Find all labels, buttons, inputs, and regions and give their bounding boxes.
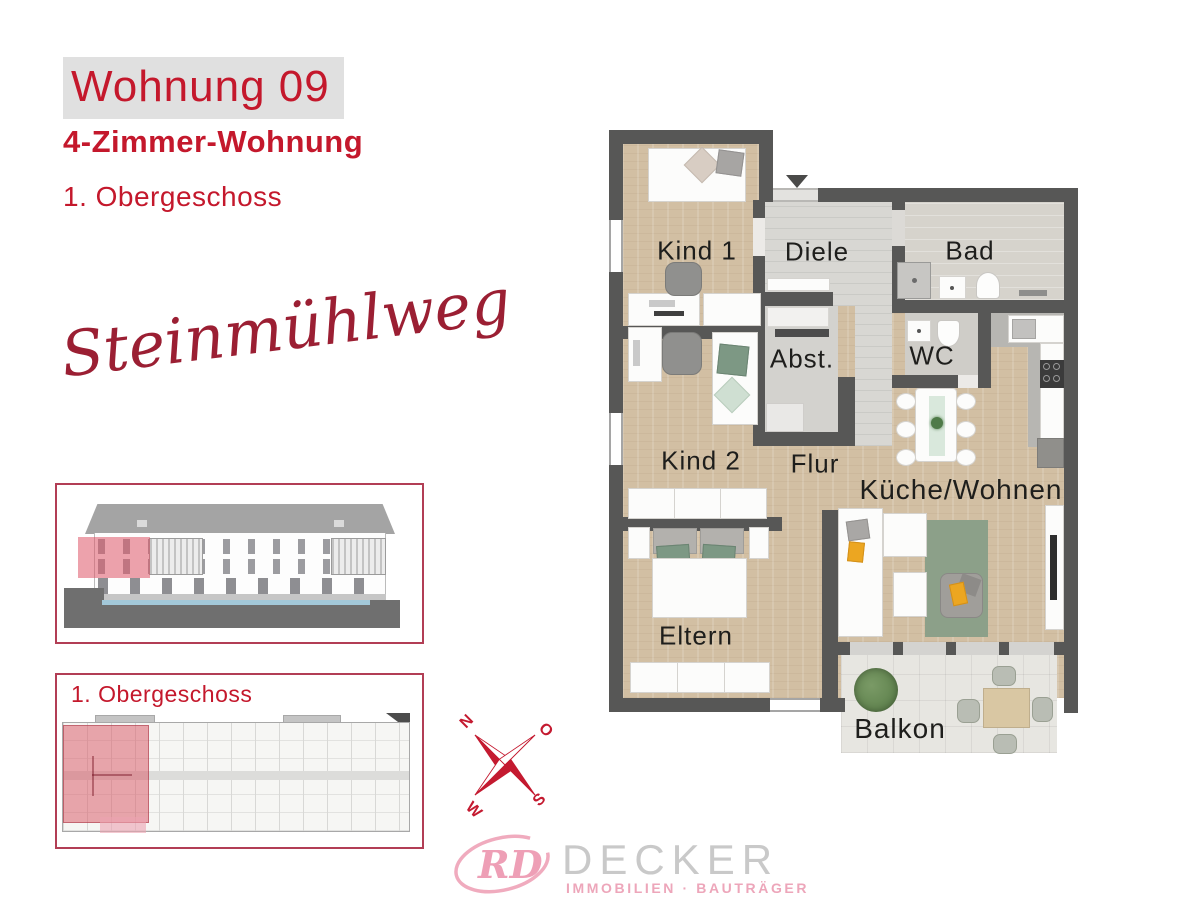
logo-tagline: IMMOBILIEN · BAUTRÄGER <box>566 880 809 896</box>
table-plant <box>931 417 943 429</box>
glazing-mullion <box>999 642 1009 655</box>
kind1-sideboard <box>703 293 761 326</box>
sofa-seam <box>720 489 721 518</box>
overview-apartment-wall <box>92 756 94 796</box>
sink-faucet <box>950 286 954 290</box>
wall-abst-bottom <box>753 432 855 446</box>
overview-apartment-wall <box>92 774 132 776</box>
eltern-wardrobe <box>630 662 770 693</box>
living-coffee-table <box>893 572 927 617</box>
kind2-pillow-green <box>717 344 750 377</box>
compass-west: W <box>462 799 485 822</box>
overview-highlighted-balcony <box>100 817 146 833</box>
room-label-kind1: Kind 1 <box>657 236 737 267</box>
room-label-diele: Diele <box>785 237 849 268</box>
wall-abst-top <box>765 292 833 306</box>
outside-area <box>765 130 1078 188</box>
compass-rose-icon: N O S W <box>450 703 560 823</box>
floor-passage-tile <box>855 306 892 446</box>
elevation-roof-window <box>137 520 147 527</box>
street-name-script: Steinmühlweg <box>57 272 453 392</box>
living-armchair <box>940 573 983 618</box>
room-label-balkon: Balkon <box>854 713 946 745</box>
overview-highlighted-apartment <box>63 725 149 823</box>
eltern-nightstand <box>749 527 769 559</box>
dining-chair <box>956 449 976 466</box>
elevation-groundfloor-row <box>98 578 382 594</box>
sofa-pillow-yellow <box>847 541 865 563</box>
kind2-chair <box>662 332 702 375</box>
room-label-bad: Bad <box>945 236 994 267</box>
elevation-balcony <box>149 538 203 575</box>
burner <box>1043 363 1050 370</box>
compass-north: N <box>457 712 477 732</box>
glazing-mullion <box>838 642 850 655</box>
kitchen-stove <box>1040 360 1064 388</box>
kind1-keyboard <box>654 311 684 316</box>
window-eltern <box>770 698 820 712</box>
kind2-sofa <box>628 488 767 519</box>
elevation-roof <box>85 504 395 534</box>
wc-sink <box>907 320 931 342</box>
wall-top-kind1 <box>609 130 773 144</box>
room-label-kueche-wohnen: Küche/Wohnen <box>860 474 1063 506</box>
eltern-bed <box>652 558 747 618</box>
bad-toilet <box>976 272 1000 299</box>
kind1-laptop <box>649 300 675 307</box>
apartment-type: 4-Zimmer-Wohnung <box>63 124 363 160</box>
kind1-desk <box>628 293 700 326</box>
wall-kind1-right <box>759 130 773 202</box>
glazing-mullion <box>946 642 956 655</box>
abst-cabinet <box>767 307 829 327</box>
wardrobe-seam <box>724 663 725 692</box>
balcony-chair <box>992 666 1016 686</box>
wardrobe-seam <box>677 663 678 692</box>
elevation-box <box>55 483 424 644</box>
door-wc <box>958 375 978 388</box>
apartment-title-band: Wohnung 09 <box>63 57 344 119</box>
sink-faucet <box>917 329 921 333</box>
balcony-chair <box>1032 697 1053 722</box>
logo-monogram: RD <box>477 842 543 887</box>
bad-towel-rail <box>1019 290 1047 296</box>
burner <box>1053 375 1060 382</box>
sofa-pillow-gray <box>846 519 871 542</box>
kitchen-counter <box>1008 315 1064 343</box>
bad-sink <box>939 276 966 299</box>
shower-drain <box>912 278 917 283</box>
balcony-chair <box>993 734 1017 754</box>
kind2-laptop <box>633 340 640 366</box>
wall-right <box>1064 188 1078 713</box>
balcony-plant <box>854 668 898 712</box>
kind1-chair <box>665 262 702 296</box>
window-kind1 <box>609 220 623 272</box>
door-kind1 <box>753 218 765 256</box>
sofa-seam <box>674 489 675 518</box>
room-label-flur: Flur <box>791 449 840 480</box>
floorplan: Kind 1 Diele Bad Abst. WC Kind 2 Flur Kü… <box>609 130 1079 755</box>
window-kind2 <box>609 413 623 465</box>
elevation-highlighted-apartment <box>78 537 150 578</box>
dining-chair <box>896 393 916 410</box>
living-sofa-arm <box>883 513 927 557</box>
balcony-chair <box>957 699 980 723</box>
kitchen-sink <box>1012 319 1036 339</box>
entrance-arrow-icon <box>786 175 808 188</box>
elevation-water-line <box>102 600 370 605</box>
kitchen-counter-run <box>1040 343 1064 447</box>
wall-eltern-living <box>822 510 838 698</box>
burner <box>1053 363 1060 370</box>
elevation-balcony <box>331 538 386 575</box>
room-label-abst: Abst. <box>770 344 834 375</box>
logo-company-name: DECKER <box>562 836 779 884</box>
diele-cabinet <box>767 278 830 291</box>
room-label-kind2: Kind 2 <box>661 446 741 477</box>
glazing-mullion <box>893 642 903 655</box>
dining-chair <box>956 421 976 438</box>
room-label-eltern: Eltern <box>659 621 733 652</box>
wall-bad-bottom <box>892 300 1064 313</box>
wall-top-main <box>818 188 1064 202</box>
overview-floor-label: 1. Obergeschoss <box>71 681 252 708</box>
room-label-wc: WC <box>909 341 954 372</box>
kitchen-cabinet <box>1037 438 1064 468</box>
floor-name: 1. Obergeschoss <box>63 181 282 213</box>
apartment-title: Wohnung 09 <box>71 62 330 111</box>
abst-storage-box <box>766 403 804 432</box>
burner <box>1043 375 1050 382</box>
compass-east: O <box>535 720 556 741</box>
elevation-roof-window <box>334 520 344 527</box>
door-bad <box>892 210 905 246</box>
logo-rd-emblem-icon: RD <box>448 828 556 900</box>
dining-chair <box>956 393 976 410</box>
bad-shower <box>897 262 931 299</box>
eltern-nightstand <box>628 527 650 559</box>
dining-chair <box>896 449 916 466</box>
entrance-door-threshold <box>773 188 818 202</box>
kind1-pillow <box>715 149 744 176</box>
dining-table <box>915 388 957 462</box>
dining-chair <box>896 421 916 438</box>
glazing-mullion <box>1054 642 1066 655</box>
balcony-table <box>983 688 1030 728</box>
tv-screen <box>1050 535 1057 600</box>
abst-shelf <box>775 329 829 337</box>
